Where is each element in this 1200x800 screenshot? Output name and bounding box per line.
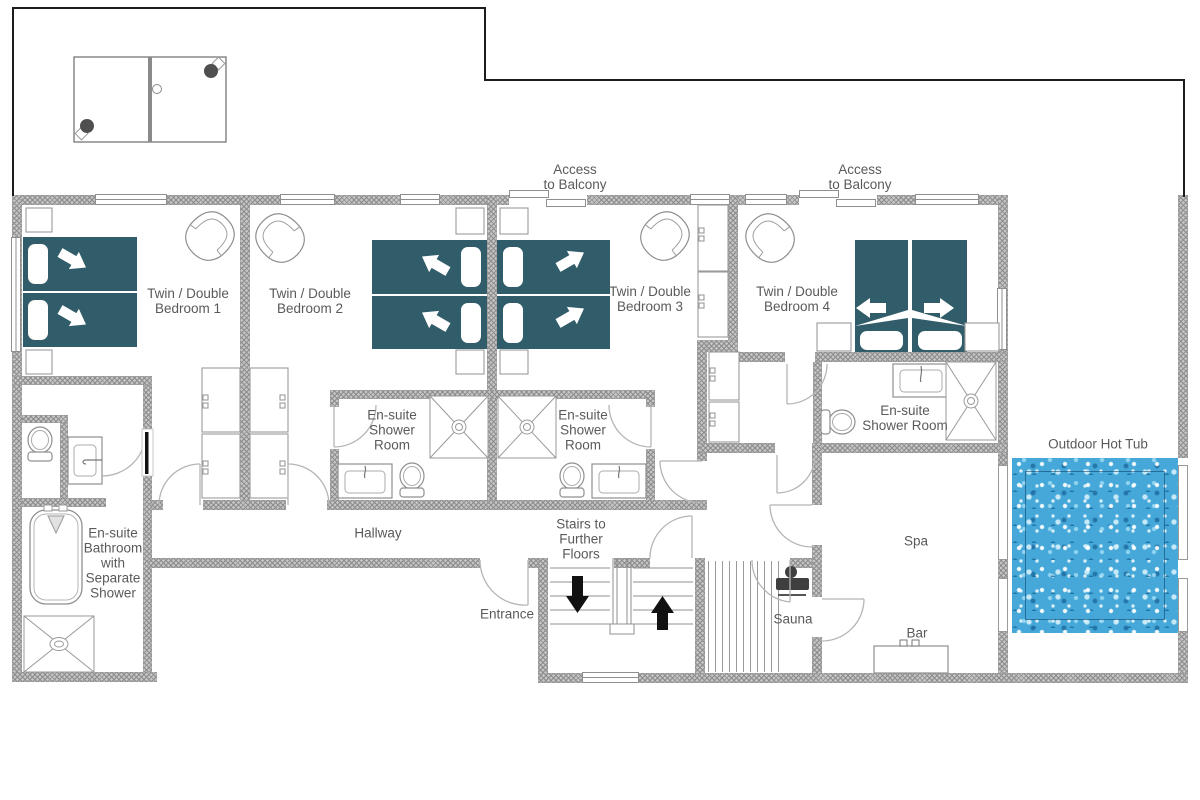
bed: [855, 240, 967, 352]
ensuite2-label: En-suiteShowerRoom: [367, 408, 417, 453]
bed: [23, 237, 137, 347]
entrance-label: Entrance: [480, 607, 534, 622]
access-balcony-label: Accessto Balcony: [828, 162, 891, 192]
sauna-heater: [776, 566, 809, 595]
pocket-door[interactable]: [142, 429, 153, 476]
shower-tray-icon: [946, 362, 996, 440]
bedroom2-label: Twin / DoubleBedroom 2: [269, 286, 351, 316]
sink-icon: [592, 464, 646, 498]
fixtures-layer: [0, 0, 1200, 800]
toilet-icon: [400, 463, 424, 497]
toilet-icon: [821, 410, 855, 434]
toilet-icon: [28, 427, 52, 461]
sink-icon: [338, 464, 392, 498]
floor-plan: Accessto Balcony Accessto Balcony Twin /…: [0, 0, 1200, 800]
bathroom-label: En-suiteBathroomwithSeparateShower: [84, 526, 143, 601]
balcony-furniture: [74, 57, 226, 142]
staircase[interactable]: [550, 558, 693, 634]
sink-icon: [68, 437, 102, 484]
hot-tub-label: Outdoor Hot Tub: [1048, 437, 1148, 452]
access-balcony-label: Accessto Balcony: [543, 162, 606, 192]
stairs-label: Stairs toFurtherFloors: [556, 517, 606, 562]
bedroom4-label: Twin / DoubleBedroom 4: [756, 284, 838, 314]
bedroom3-label: Twin / DoubleBedroom 3: [609, 284, 691, 314]
ensuite3-label: En-suiteShowerRoom: [558, 408, 608, 453]
sink-icon: [893, 364, 949, 397]
toilet-icon: [560, 463, 584, 497]
bed: [372, 240, 487, 349]
hallway-label: Hallway: [354, 526, 401, 541]
sauna-label: Sauna: [773, 612, 812, 627]
bed: [497, 240, 610, 349]
bar-counter: [874, 640, 948, 673]
shower-tray-icon: [498, 396, 556, 458]
ensuite4-label: En-suiteShower Room: [862, 403, 948, 433]
shower-tray-icon: [24, 616, 94, 672]
shower-tray-icon: [430, 396, 488, 458]
spa-label: Spa: [904, 534, 928, 549]
bathtub-icon: [30, 505, 82, 604]
bedroom1-label: Twin / DoubleBedroom 1: [147, 286, 229, 316]
bar-label: Bar: [906, 626, 927, 641]
